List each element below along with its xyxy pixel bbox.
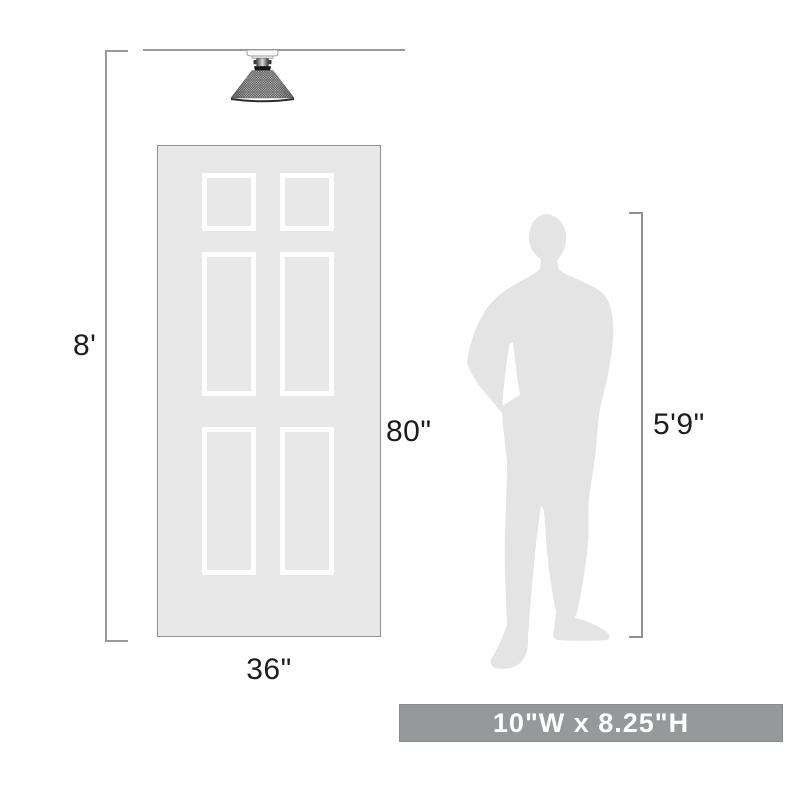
person-height-label: 5'9" bbox=[653, 410, 705, 440]
door-panel bbox=[202, 173, 256, 231]
person-silhouette-icon bbox=[462, 212, 622, 672]
door-graphic bbox=[157, 145, 381, 637]
door-panel bbox=[280, 173, 334, 231]
door-width-label: 36" bbox=[157, 655, 381, 685]
flush-mount-light-icon bbox=[225, 44, 310, 106]
door-panel bbox=[280, 252, 334, 396]
door-panel bbox=[202, 252, 256, 396]
product-dimensions-banner: 10"W x 8.25"H bbox=[399, 704, 783, 742]
door-panel bbox=[202, 427, 256, 575]
dimension-diagram: 8' bbox=[0, 0, 800, 800]
person-height-dimension-line bbox=[641, 212, 643, 638]
ceiling-height-bottom-tick bbox=[105, 640, 128, 642]
person-height-bottom-tick bbox=[629, 636, 643, 638]
door-panel bbox=[280, 427, 334, 575]
ceiling-height-dimension-line bbox=[105, 50, 107, 642]
ceiling-height-label: 8' bbox=[73, 331, 96, 361]
door-height-label: 80" bbox=[386, 417, 432, 447]
person-height-top-tick bbox=[629, 212, 643, 214]
ceiling-height-top-tick bbox=[105, 50, 128, 52]
